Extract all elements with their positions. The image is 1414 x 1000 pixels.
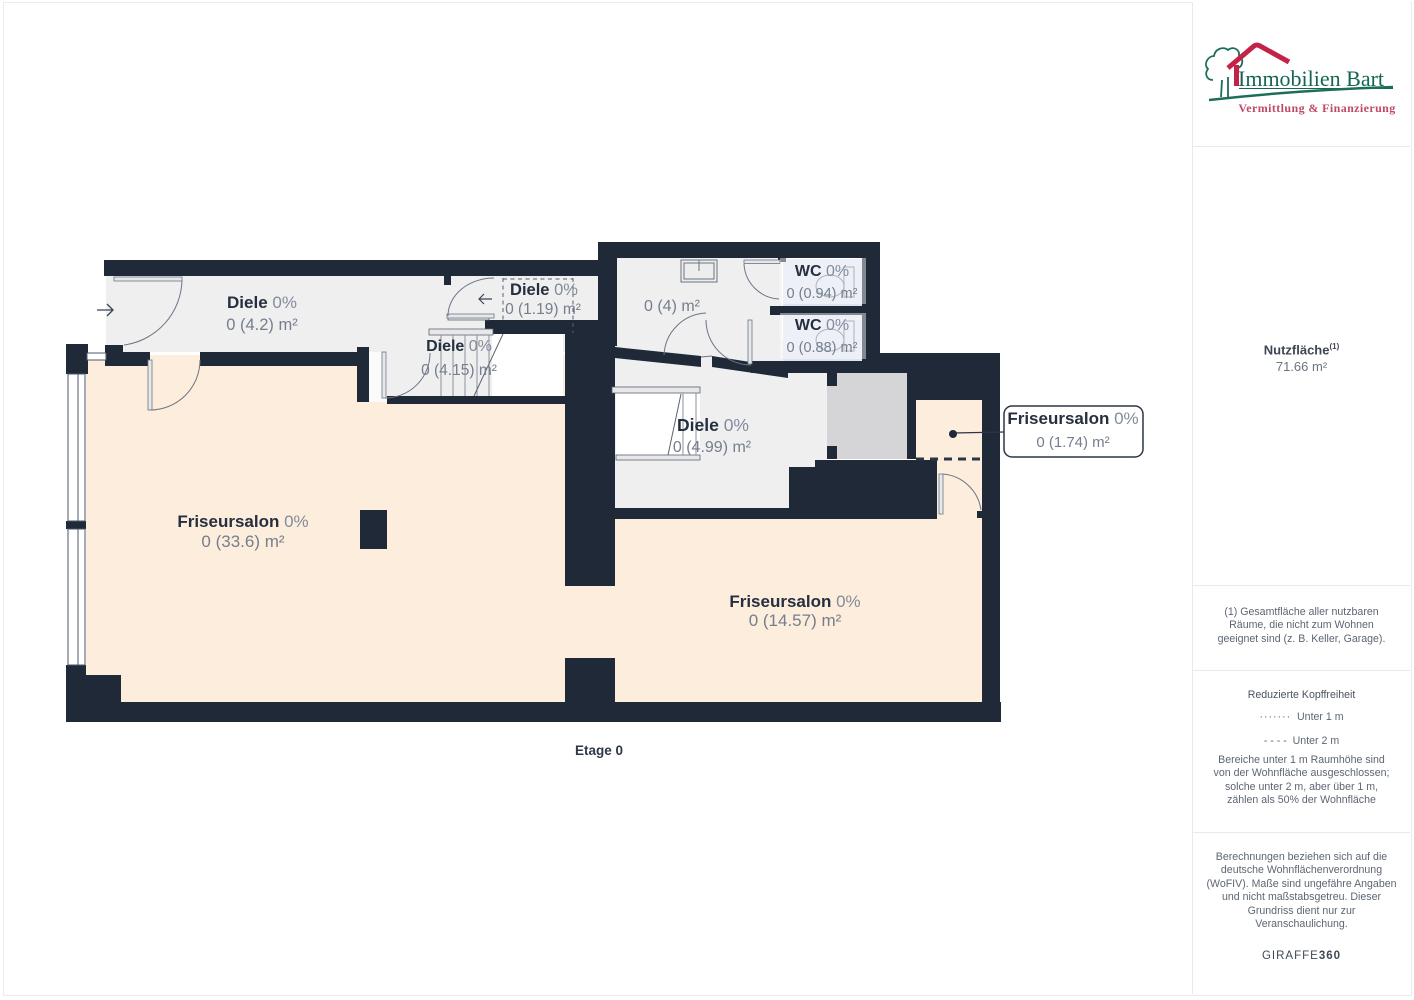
svg-text:0 (1.19) m²: 0 (1.19) m² <box>505 301 581 318</box>
svg-text:Friseursalon 0%: Friseursalon 0% <box>177 512 308 531</box>
svg-text:Diele 0%: Diele 0% <box>227 293 297 312</box>
svg-text:Etage 0: Etage 0 <box>575 743 623 758</box>
svg-text:0 (0.94) m²: 0 (0.94) m² <box>787 286 858 302</box>
svg-text:WC 0%: WC 0% <box>795 263 849 280</box>
svg-text:Vermittlung & Finanzierung: Vermittlung & Finanzierung <box>1238 101 1395 115</box>
svg-text:Diele 0%: Diele 0% <box>510 281 578 299</box>
svg-text:Friseursalon 0%: Friseursalon 0% <box>729 592 860 611</box>
svg-text:WC 0%: WC 0% <box>795 317 849 334</box>
svg-text:0 (1.74) m²: 0 (1.74) m² <box>1036 434 1109 451</box>
svg-text:Diele 0%: Diele 0% <box>426 338 492 355</box>
svg-text:Diele 0%: Diele 0% <box>677 415 749 435</box>
svg-text:0 (4.2) m²: 0 (4.2) m² <box>226 316 298 334</box>
svg-text:0 (4) m²: 0 (4) m² <box>644 298 701 315</box>
svg-text:0 (4.15) m²: 0 (4.15) m² <box>421 362 497 379</box>
svg-text:Friseursalon 0%: Friseursalon 0% <box>1007 409 1138 428</box>
svg-text:0 (14.57) m²: 0 (14.57) m² <box>749 611 842 630</box>
svg-text:0 (4.99) m²: 0 (4.99) m² <box>673 439 752 456</box>
svg-text:0 (33.6) m²: 0 (33.6) m² <box>201 532 284 551</box>
svg-text:0 (0.88) m²: 0 (0.88) m² <box>787 340 858 356</box>
